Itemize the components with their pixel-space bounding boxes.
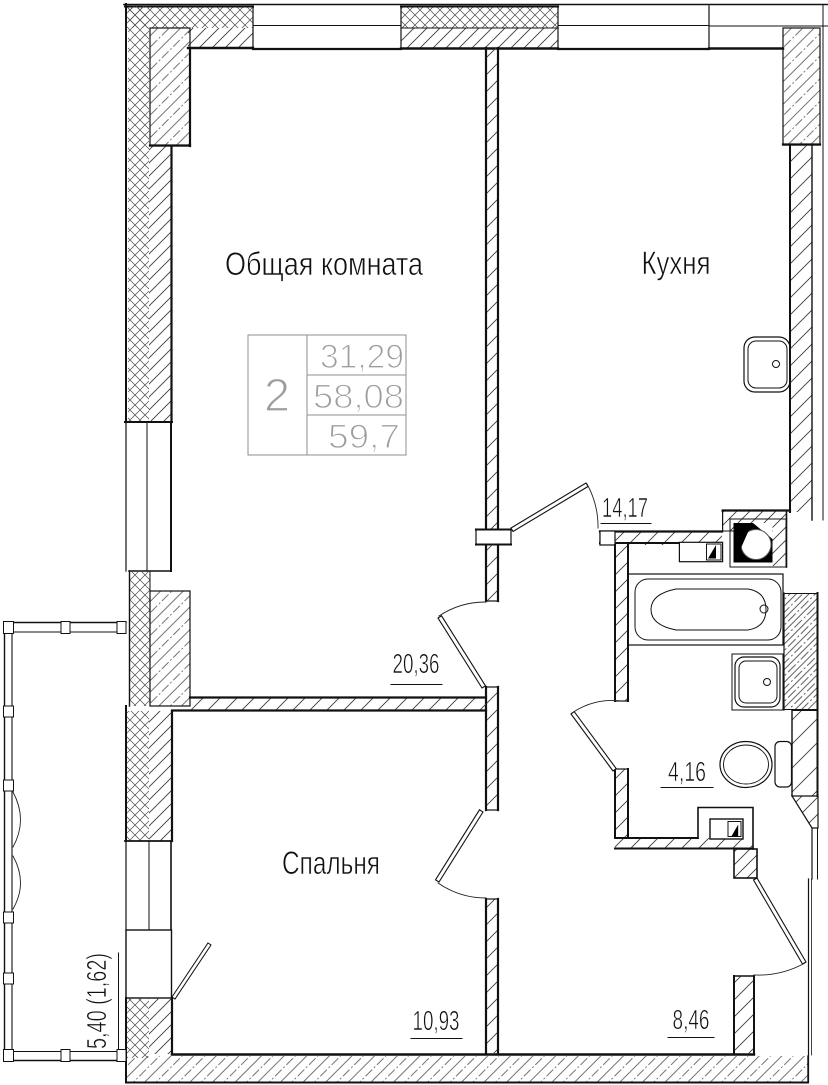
svg-text:Общая комната: Общая комната (225, 246, 423, 282)
svg-text:8,46: 8,46 (673, 1004, 710, 1035)
svg-text:59,7: 59,7 (328, 418, 400, 456)
svg-text:20,36: 20,36 (393, 648, 440, 679)
svg-text:Спальня: Спальня (282, 845, 380, 881)
svg-text:Кухня: Кухня (642, 245, 711, 281)
svg-text:31,29: 31,29 (320, 338, 404, 376)
svg-text:2: 2 (264, 369, 290, 421)
svg-text:4,16: 4,16 (668, 756, 706, 787)
svg-text:14,17: 14,17 (602, 492, 648, 523)
svg-text:10,93: 10,93 (413, 1005, 460, 1036)
svg-text:58,08: 58,08 (313, 378, 404, 416)
svg-text:5,40 (1,62): 5,40 (1,62) (81, 953, 112, 1049)
